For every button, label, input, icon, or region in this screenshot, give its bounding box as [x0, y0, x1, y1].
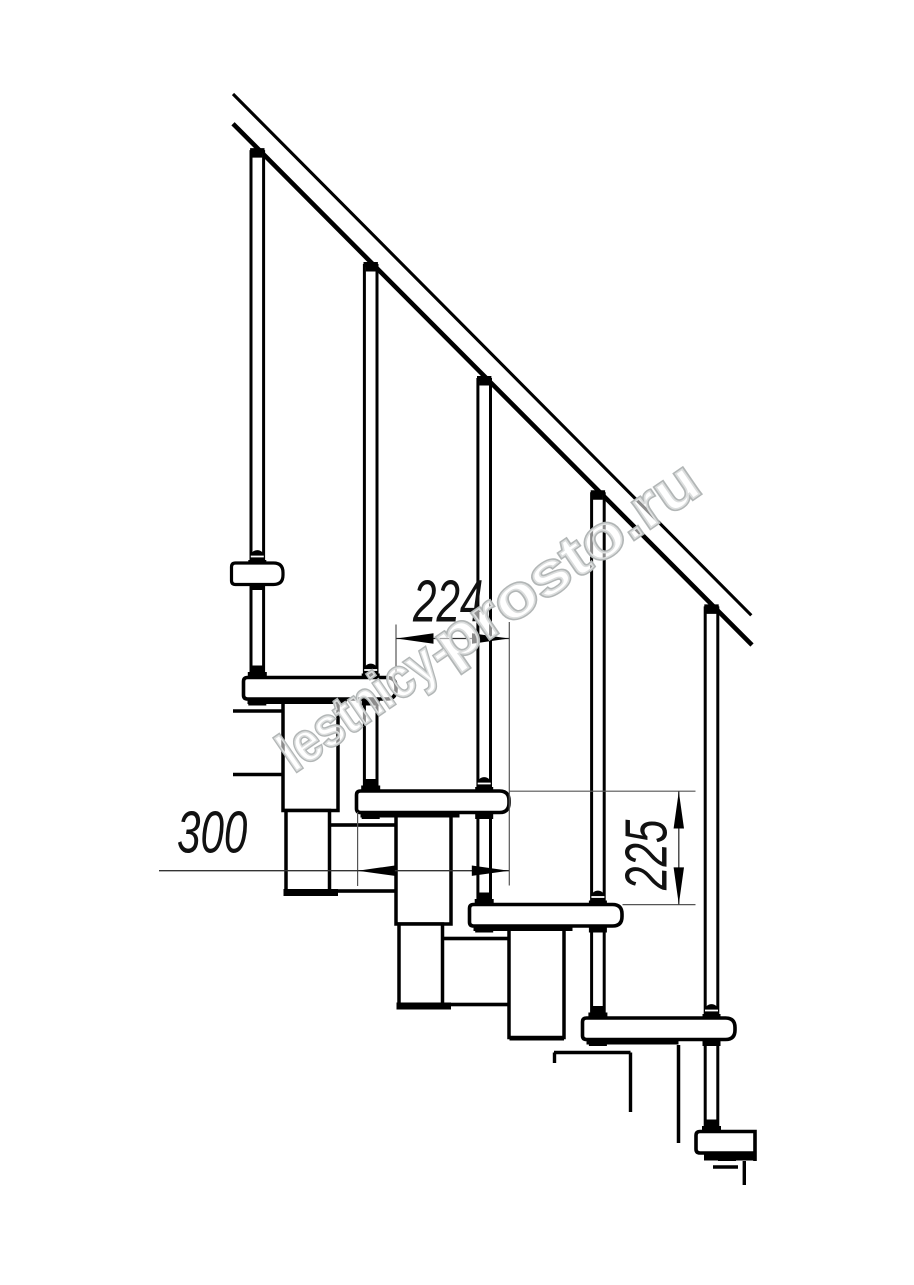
svg-text:300: 300 — [177, 800, 248, 866]
svg-text:225: 225 — [614, 819, 680, 891]
